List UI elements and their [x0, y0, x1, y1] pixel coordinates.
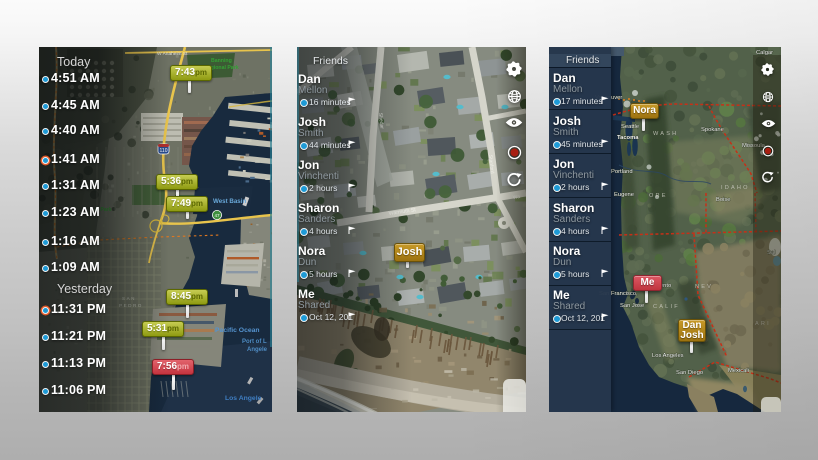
svg-text:Portland: Portland	[611, 169, 633, 175]
svg-text:Los Angeles: Los Angeles	[652, 353, 684, 359]
svg-text:IDAHO: IDAHO	[721, 185, 750, 191]
svg-text:Banning: Banning	[211, 58, 232, 64]
svg-text:San Jose: San Jose	[620, 303, 644, 309]
svg-text:Seattle: Seattle	[621, 124, 639, 130]
svg-text:Eugene: Eugene	[614, 192, 634, 198]
svg-text:Boise: Boise	[716, 197, 731, 203]
svg-text:47: 47	[214, 213, 220, 218]
svg-text:Spokane: Spokane	[701, 127, 724, 133]
svg-text:Mexicali: Mexicali	[728, 368, 749, 374]
svg-text:NEV: NEV	[695, 284, 713, 290]
svg-text:West Basin: West Basin	[213, 198, 246, 205]
svg-text:Tacoma: Tacoma	[617, 135, 639, 141]
svg-text:Port of L: Port of L	[242, 339, 267, 345]
svg-text:Los Angele: Los Angele	[225, 395, 262, 402]
svg-text:San Diego: San Diego	[676, 370, 703, 376]
svg-text:Angele: Angele	[247, 347, 268, 353]
svg-text:ORE: ORE	[649, 193, 668, 199]
svg-text:Pacific Ocean: Pacific Ocean	[215, 327, 260, 334]
svg-text:WASH: WASH	[653, 131, 678, 137]
svg-text:CALIF: CALIF	[653, 304, 680, 310]
